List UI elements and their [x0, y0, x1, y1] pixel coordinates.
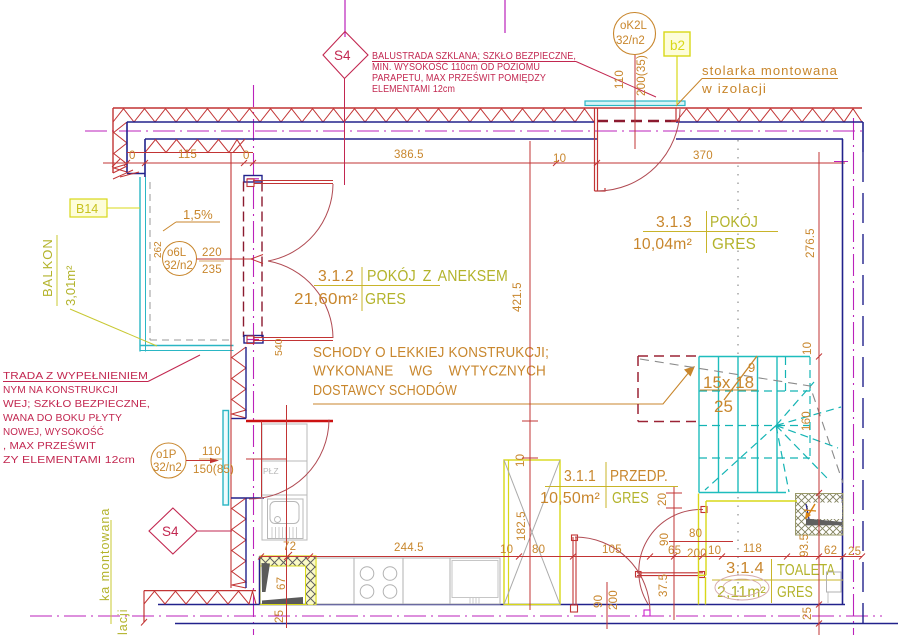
svg-text:32/n2: 32/n2: [616, 35, 645, 47]
svg-text:1,5%: 1,5%: [183, 207, 213, 222]
svg-text:32/n2: 32/n2: [164, 260, 193, 272]
svg-text:93.5: 93.5: [799, 534, 811, 557]
svg-text:S4: S4: [162, 524, 179, 539]
svg-text:PRZEDP.: PRZEDP.: [610, 468, 668, 485]
svg-text:lacji: lacji: [116, 608, 130, 635]
svg-text:oK2L: oK2L: [620, 20, 647, 32]
svg-text:DOSTAWCY SCHODÓW: DOSTAWCY SCHODÓW: [313, 382, 457, 399]
svg-text:67: 67: [276, 577, 288, 590]
svg-text:0: 0: [129, 150, 136, 162]
svg-text:10,50m²: 10,50m²: [540, 490, 600, 507]
svg-text:235: 235: [202, 264, 222, 276]
svg-text:200: 200: [687, 548, 707, 560]
svg-text:o1P: o1P: [156, 449, 177, 461]
svg-text:b2: b2: [670, 38, 685, 53]
svg-text:GRES: GRES: [712, 236, 756, 253]
svg-text:10: 10: [515, 454, 527, 467]
svg-text:S4: S4: [334, 48, 351, 63]
svg-text:62: 62: [824, 545, 837, 557]
svg-text:2,11m²: 2,11m²: [717, 584, 766, 601]
svg-text:NOWEJ, WYSOKOŚĆ: NOWEJ, WYSOKOŚĆ: [3, 425, 104, 438]
svg-text:WEJ; SZKŁO BEZPIECZNE,: WEJ; SZKŁO BEZPIECZNE,: [3, 399, 150, 410]
svg-text:WYKONANE WG WYTYCZNYCH: WYKONANE WG WYTYCZNYCH: [313, 364, 546, 380]
svg-text:PARAPETU, MAX PRZEŚWIT POMIĘDZ: PARAPETU, MAX PRZEŚWIT POMIĘDZY: [372, 71, 546, 84]
svg-text:NYM NA KONSTRUKCJI: NYM NA KONSTRUKCJI: [3, 385, 118, 396]
svg-text:110: 110: [202, 446, 221, 458]
svg-text:150(85): 150(85): [193, 464, 234, 476]
svg-text:90: 90: [659, 533, 671, 546]
svg-text:80: 80: [532, 544, 545, 556]
svg-text:72: 72: [283, 541, 296, 553]
svg-text:37.5: 37.5: [658, 574, 670, 597]
svg-text:21,60m²: 21,60m²: [294, 291, 358, 308]
svg-text:ka montowana: ka montowana: [98, 508, 112, 601]
svg-text:115: 115: [178, 149, 197, 161]
svg-text:118: 118: [743, 543, 762, 555]
svg-text:GRES: GRES: [612, 490, 649, 507]
svg-text:276.5: 276.5: [805, 228, 817, 258]
svg-text:370: 370: [693, 150, 713, 162]
svg-text:10: 10: [802, 342, 814, 355]
svg-text:25: 25: [274, 610, 286, 623]
svg-text:10: 10: [553, 153, 566, 165]
svg-text:105: 105: [602, 544, 622, 556]
svg-text:o6L: o6L: [167, 247, 187, 259]
svg-text:w izolacji: w izolacji: [701, 82, 767, 96]
svg-text:10: 10: [500, 544, 513, 556]
svg-text:25: 25: [714, 397, 733, 416]
svg-text:32/n2: 32/n2: [153, 462, 182, 474]
svg-text:182.5: 182.5: [516, 511, 528, 541]
svg-text:20: 20: [657, 493, 669, 506]
svg-text:244.5: 244.5: [394, 542, 424, 554]
svg-text:421.5: 421.5: [512, 282, 524, 312]
svg-text:3,01m²: 3,01m²: [63, 265, 78, 306]
svg-text:WANA DO BOKU PŁYTY: WANA DO BOKU PŁYTY: [3, 413, 122, 424]
svg-text:ELEMENTAMI 12cm: ELEMENTAMI 12cm: [372, 84, 455, 95]
svg-text:TRADA Z WYPEŁNIENIEM: TRADA Z WYPEŁNIENIEM: [3, 371, 148, 382]
svg-text:262: 262: [153, 241, 164, 258]
svg-text:90: 90: [593, 595, 605, 608]
svg-text:200: 200: [608, 590, 620, 610]
svg-text:80: 80: [689, 528, 702, 540]
svg-text:25: 25: [802, 607, 814, 620]
svg-text:BALKON: BALKON: [40, 238, 55, 297]
svg-text:BALUSTRADA SZKLANA; SZKŁO BEZP: BALUSTRADA SZKLANA; SZKŁO BEZPIECZNE,: [372, 51, 576, 62]
svg-text:10,04m²: 10,04m²: [633, 236, 692, 253]
svg-text:10: 10: [708, 545, 721, 557]
svg-text:3.1.1: 3.1.1: [564, 468, 596, 485]
svg-text:B14: B14: [76, 202, 98, 216]
svg-text:POKÓJ: POKÓJ: [710, 214, 758, 231]
svg-text:200(35): 200(35): [636, 55, 648, 96]
svg-text:25: 25: [848, 546, 861, 558]
svg-text:, MAX PRZEŚWIT: , MAX PRZEŚWIT: [3, 439, 96, 452]
svg-text:220: 220: [202, 247, 222, 259]
svg-text:386.5: 386.5: [394, 149, 424, 161]
svg-text:POKÓJ Z ANEKSEM: POKÓJ Z ANEKSEM: [367, 268, 508, 285]
svg-text:GRES: GRES: [777, 584, 813, 601]
svg-text:3.1.3: 3.1.3: [656, 214, 692, 231]
svg-text:0: 0: [243, 150, 250, 162]
svg-text:15x 18: 15x 18: [703, 373, 754, 392]
svg-text:SCHODY O LEKKIEJ KONSTRUKCJ: SCHODY O LEKKIEJ KONSTRUKCJI;: [313, 345, 549, 361]
svg-text:3.1.2: 3.1.2: [318, 268, 354, 285]
svg-text:110: 110: [614, 70, 626, 89]
svg-text:GRES: GRES: [365, 291, 406, 308]
svg-text:160: 160: [801, 411, 813, 431]
svg-text:ZY ELEMENTAMI 12cm: ZY ELEMENTAMI 12cm: [3, 455, 135, 466]
svg-text:540: 540: [273, 338, 285, 356]
svg-text:stolarka montowana: stolarka montowana: [702, 64, 838, 78]
svg-text:3.1.4: 3.1.4: [726, 560, 764, 577]
svg-text:PŁZ: PŁZ: [263, 466, 279, 476]
